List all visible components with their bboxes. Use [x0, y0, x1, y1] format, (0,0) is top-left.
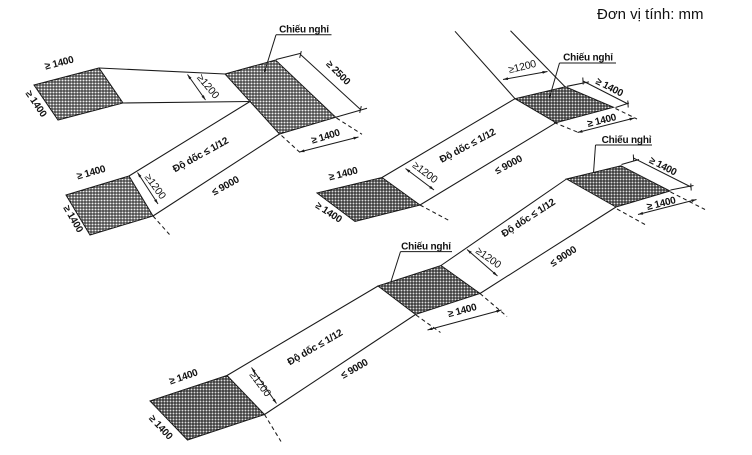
svg-text:Chiếu nghỉ: Chiếu nghỉ: [401, 241, 451, 253]
svg-text:Chiếu nghỉ: Chiếu nghỉ: [602, 134, 652, 146]
svg-text:Đơn vị tính: mm: Đơn vị tính: mm: [597, 6, 704, 23]
svg-text:Chiếu nghỉ: Chiếu nghỉ: [563, 51, 613, 63]
svg-text:Chiếu nghỉ: Chiếu nghỉ: [279, 24, 329, 36]
